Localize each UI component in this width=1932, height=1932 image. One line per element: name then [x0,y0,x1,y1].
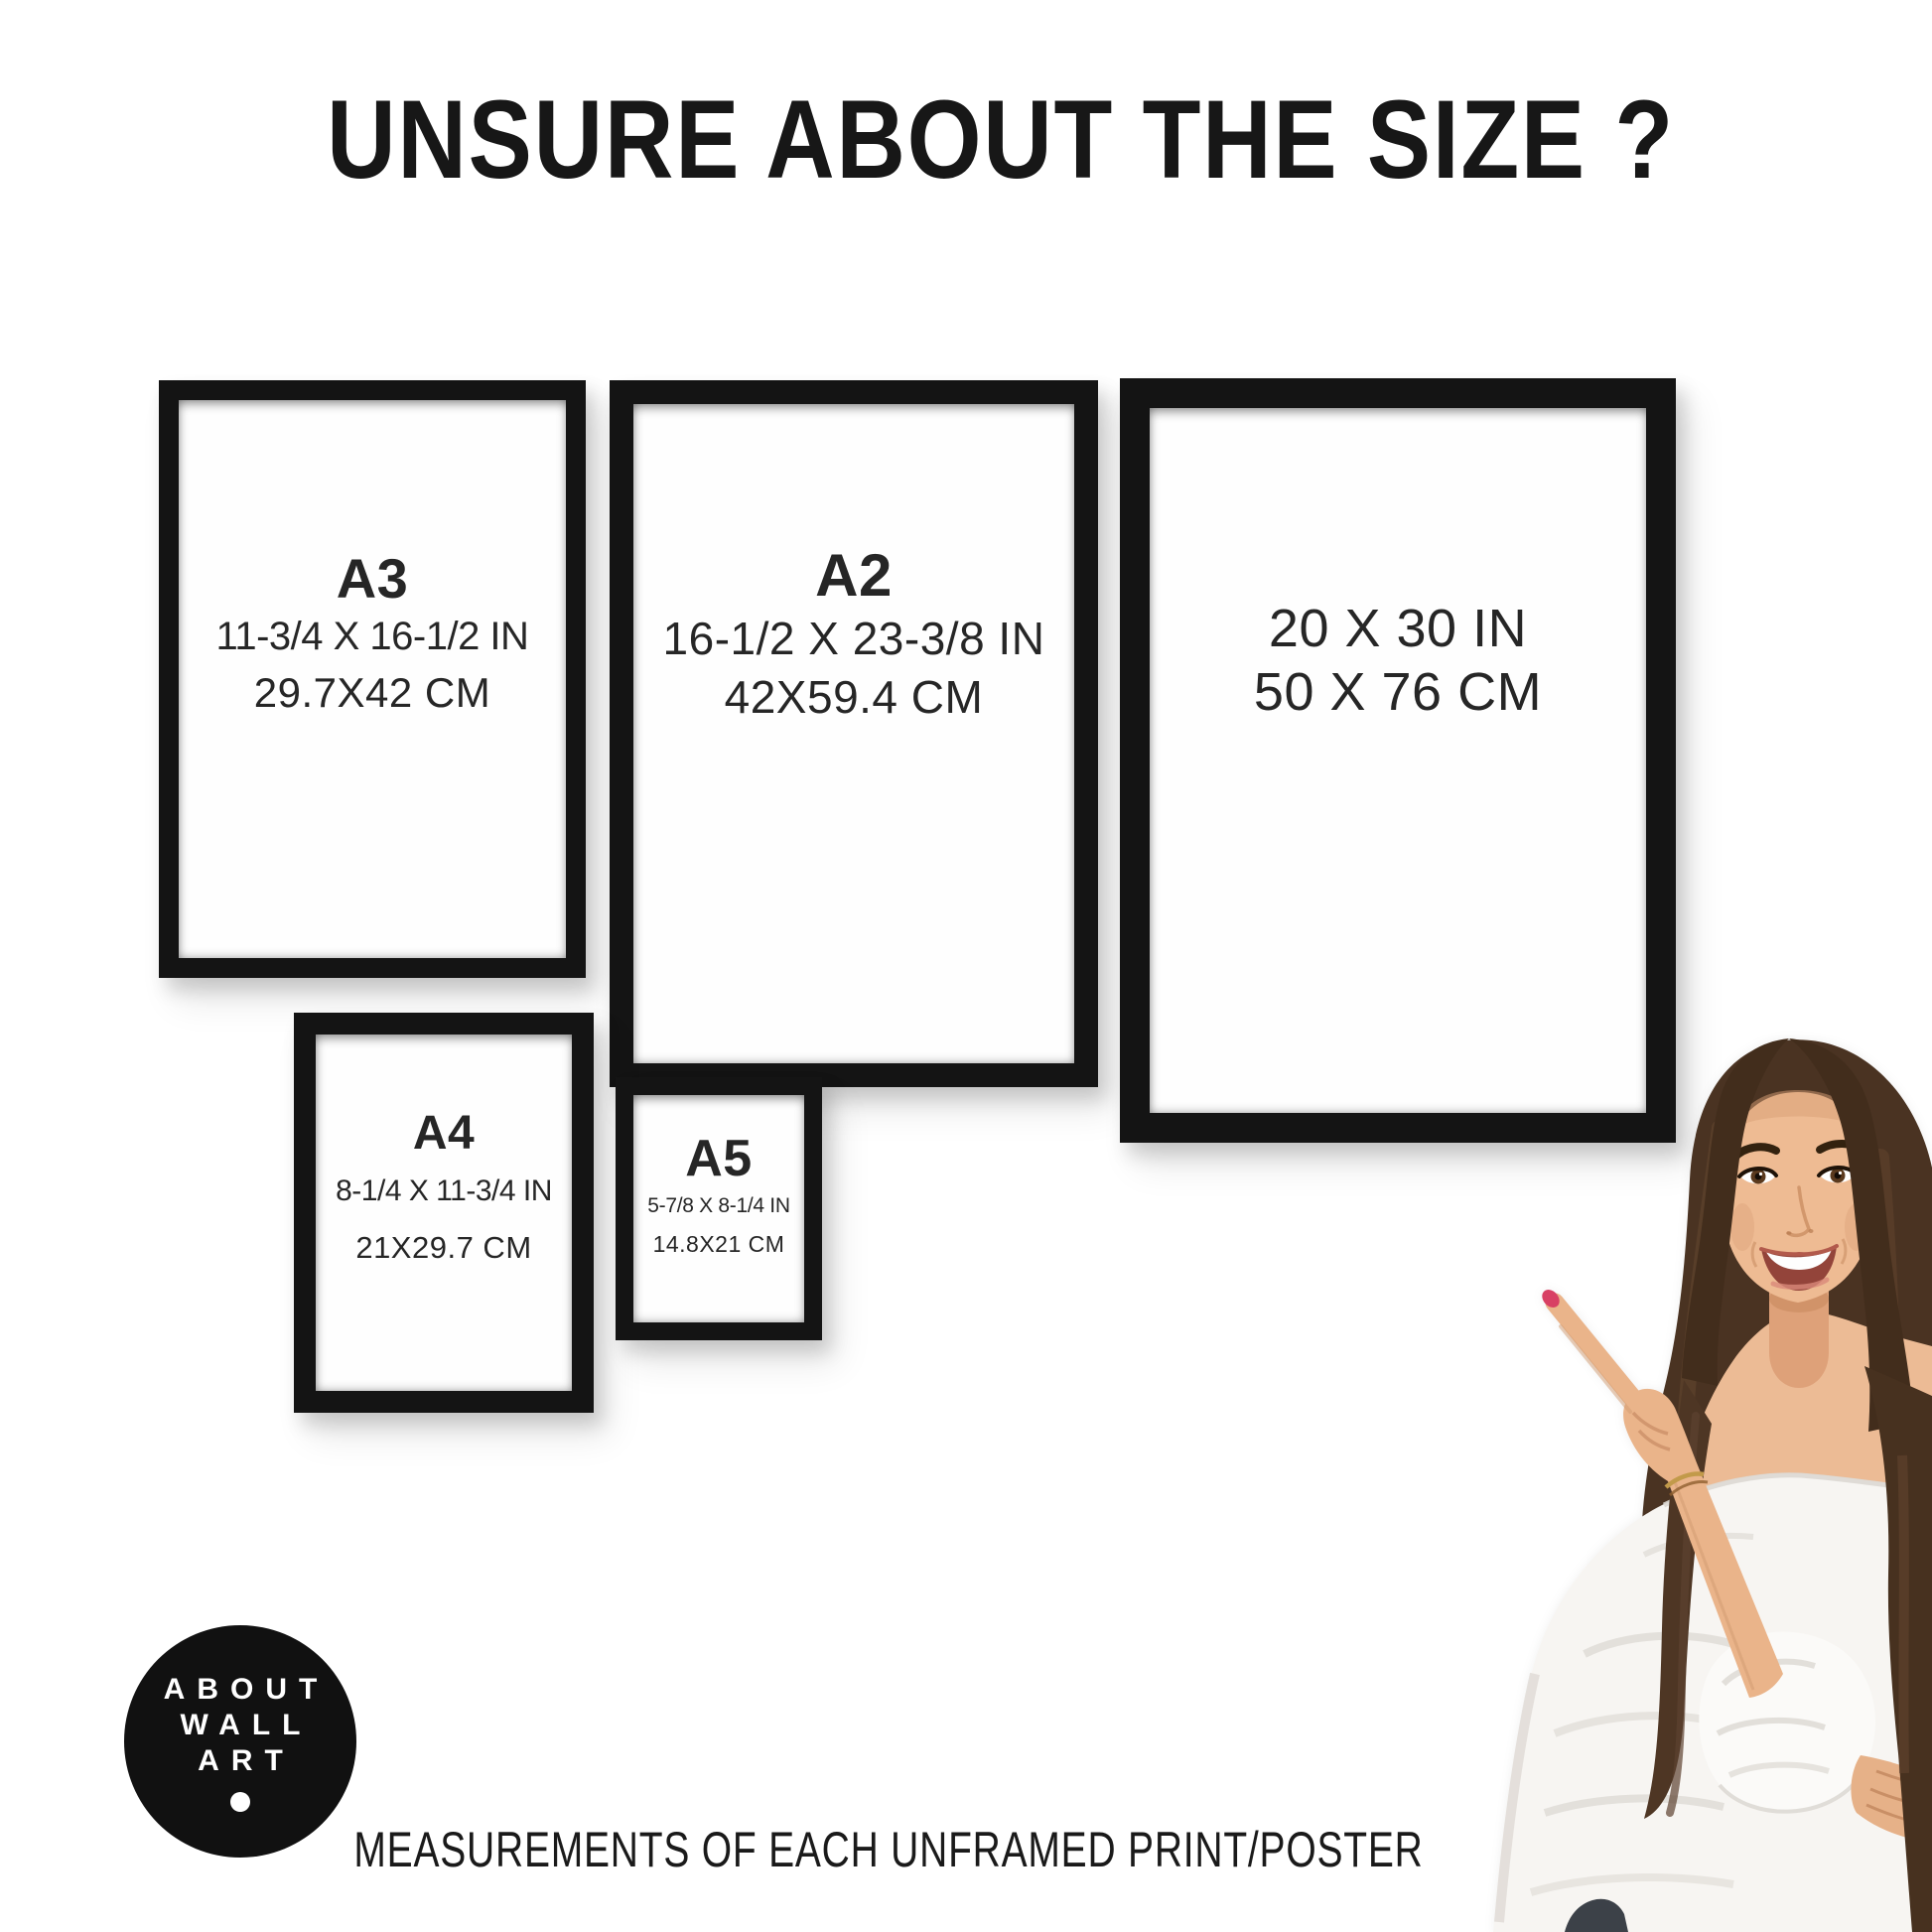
logo-line-about: ABOUT [164,1672,330,1708]
frame-a5-text: A5 5-7/8 X 8-1/4 IN 14.8X21 CM [633,1131,804,1262]
page-title: UNSURE ABOUT THE SIZE ? [200,84,1801,196]
woman-pointing-photo [1436,1038,1932,1932]
frame-a5: A5 5-7/8 X 8-1/4 IN 14.8X21 CM [616,1077,822,1340]
frame-a2-mat: A2 16-1/2 X 23-3/8 IN 42X59.4 CM [633,404,1074,1063]
frame-a4-text: A4 8-1/4 X 11-3/4 IN 21X29.7 CM [316,1106,572,1275]
frame-a4: A4 8-1/4 X 11-3/4 IN 21X29.7 CM [294,1013,594,1413]
frame-a2-label: A2 [633,543,1074,609]
frame-a5-cm: 14.8X21 CM [633,1226,804,1262]
frame-a5-label: A5 [633,1131,804,1186]
frame-a2-inches: 16-1/2 X 23-3/8 IN [633,609,1074,668]
frame-a4-label: A4 [316,1106,572,1162]
frame-a3-label: A3 [179,549,566,609]
frame-a4-mat: A4 8-1/4 X 11-3/4 IN 21X29.7 CM [316,1035,572,1391]
size-guide-poster: UNSURE ABOUT THE SIZE ? A3 11-3/4 X 16-1… [0,0,1932,1932]
frame-a2: A2 16-1/2 X 23-3/8 IN 42X59.4 CM [610,380,1098,1087]
frame-20x30-inches: 20 X 30 IN [1150,597,1646,660]
frame-20x30-text: 20 X 30 IN 50 X 76 CM [1150,597,1646,724]
frame-a4-inches: 8-1/4 X 11-3/4 IN [316,1162,572,1221]
frame-a5-inches: 5-7/8 X 8-1/4 IN [633,1186,804,1226]
logo-line-wall: WALL [181,1708,313,1743]
frame-a3-text: A3 11-3/4 X 16-1/2 IN 29.7X42 CM [179,549,566,721]
frame-a4-cm: 21X29.7 CM [316,1221,572,1275]
brand-logo: ABOUT WALL ART [124,1625,356,1858]
frame-a3-inches: 11-3/4 X 16-1/2 IN [179,609,566,665]
logo-dot [230,1792,250,1812]
frame-20x30: 20 X 30 IN 50 X 76 CM [1120,378,1676,1143]
rolled-sleeve-cuff [1699,1632,1875,1814]
frame-20x30-cm: 50 X 76 CM [1150,660,1646,724]
frame-a3-mat: A3 11-3/4 X 16-1/2 IN 29.7X42 CM [179,400,566,958]
frame-a2-cm: 42X59.4 CM [633,668,1074,726]
frame-20x30-mat: 20 X 30 IN 50 X 76 CM [1150,408,1646,1113]
caption: MEASUREMENTS OF EACH UNFRAMED PRINT/POST… [196,1825,1582,1874]
frame-a3: A3 11-3/4 X 16-1/2 IN 29.7X42 CM [159,380,586,978]
pointing-finger [1555,1303,1634,1400]
frame-a2-text: A2 16-1/2 X 23-3/8 IN 42X59.4 CM [633,543,1074,726]
logo-line-art: ART [198,1743,295,1779]
frame-a3-cm: 29.7X42 CM [179,665,566,721]
frame-a5-mat: A5 5-7/8 X 8-1/4 IN 14.8X21 CM [633,1095,804,1322]
